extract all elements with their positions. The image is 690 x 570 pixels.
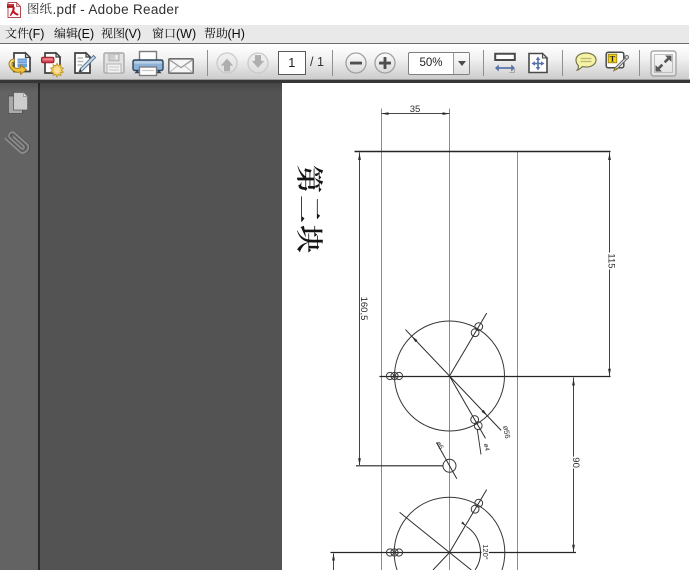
svg-text:35: 35	[410, 104, 421, 115]
svg-text:120°: 120°	[481, 544, 490, 560]
svg-text:160,5: 160,5	[358, 297, 369, 321]
svg-text:115: 115	[606, 253, 617, 268]
svg-text:ø56: ø56	[501, 425, 512, 439]
svg-text:ø4: ø4	[482, 443, 490, 452]
svg-text:T: T	[610, 53, 616, 63]
svg-text:90: 90	[570, 457, 581, 468]
svg-text:ø6: ø6	[434, 440, 444, 451]
